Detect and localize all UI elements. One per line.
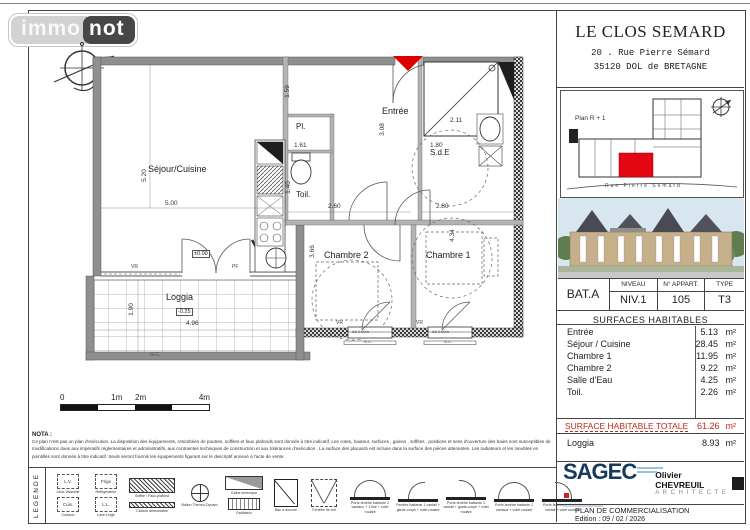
window-leaf-chambre2 (362, 302, 390, 330)
legend-item-window1: Fenêtre battante 1 vantail + garde-corps… (395, 479, 441, 512)
wall-chambre2-left (296, 225, 304, 360)
partition-sde-left (418, 57, 422, 220)
washer-icon: L.L. (95, 497, 117, 512)
wall-left (93, 57, 101, 276)
total-value: 61.26 (697, 421, 720, 431)
architect-title: A R C H I T E C T E (655, 490, 728, 496)
dim-loggia-w: 4.96 (186, 320, 199, 327)
dim-pl-h: 1.59 (284, 85, 291, 98)
doc-footer: PLAN DE COMMERCIALISATION Edition : 09 /… (557, 504, 744, 522)
sagec-tagline-bars (637, 467, 663, 473)
legend-item-door1gc: Porte-fenêtre battante 1 vantail + garde… (443, 477, 489, 514)
nota-text: Ce plan n'est pas un plan d'exécution. L… (32, 438, 552, 460)
room-label-chambre2: Chambre 2 (324, 250, 369, 260)
dim-c2-h: 3.66 (309, 245, 316, 258)
legend-item-frigo: Frigo Réfrigérateur (89, 474, 123, 494)
surface-row: Toil.2.26m² (557, 386, 744, 398)
dim-entree-h: 3.08 (379, 123, 386, 136)
mark-vr-sejour: VR (131, 264, 138, 270)
building-photo-art (558, 198, 744, 278)
legend-structures: Soffite / Faux-plafond Cloison démontabl… (129, 478, 175, 514)
level-value: NIV.1 (610, 292, 658, 310)
legend-band: LEGENDE L.V. Lave-Vaisselle Frigo Réfrig… (28, 467, 556, 523)
corner-duct (498, 62, 514, 100)
site-plan-box: Plan R + 1 Rue Pierre Sémard (560, 90, 744, 198)
surface-row: Séjour / Cuisine28.45m² (557, 338, 744, 350)
legend-item-soffite: Soffite / Faux-plafond (129, 478, 175, 498)
scale-bar-segments (60, 404, 210, 411)
architect-name: Olivier CHEVREUIL (655, 470, 728, 490)
partition-hall-bedrooms (283, 220, 523, 225)
col-type-header: TYPE (705, 278, 744, 291)
total-label: SURFACE HABITABLE TOTALE (565, 421, 688, 432)
legend-item-radiateur: Radiateur (224, 498, 264, 515)
surfaces-list: Entrée5.13m² Séjour / Cuisine28.45m² Cha… (557, 326, 744, 418)
shower-tray-icon (274, 479, 298, 507)
surface-row: Chambre 111.95m² (557, 350, 744, 362)
room-label-chambre1: Chambre 1 (426, 250, 471, 260)
scale-tick-3: 4m (199, 393, 210, 402)
chambre2-door-arc (364, 225, 400, 261)
surfaces-title: SURFACES HABITABLES (593, 315, 708, 325)
mark-pf-sejour: PF (232, 264, 238, 270)
mark-vr-c1: VR (416, 320, 423, 326)
site-plan-label: Plan R + 1 (575, 115, 606, 122)
single-door-guardrail-icon (446, 477, 486, 500)
kitchen-fridge-zone (257, 166, 283, 194)
mark-vr-c2: VR (336, 320, 343, 326)
doc-title: PLAN DE COMMERCIALISATION (575, 506, 744, 515)
wall-loggia-left (86, 276, 94, 360)
legend-title-cell: LEGENDE (28, 468, 46, 523)
legend-item-ll: L.L. Lave-Linge (89, 497, 123, 517)
dim-c1-w: 2.80 (436, 203, 449, 210)
surface-row: Entrée5.13m² (557, 326, 744, 338)
mark-sill-c1: Alt 0.60m (432, 329, 449, 334)
legend-item-ballon: Ballon Thermo-Dynam. (181, 484, 219, 507)
toilet-bowl (291, 160, 311, 184)
level-entry: ±0.00 (192, 250, 210, 258)
surfaces-title-bar: SURFACES HABITABLES (557, 310, 744, 325)
loggia-row: Loggia 8.93 m² (557, 434, 744, 462)
legend-item-door2: Porte-fenêtre battante 2 vantaux + volet… (491, 479, 537, 512)
legend-item-cloison: Cloison démontable (129, 502, 175, 513)
washbasin (480, 117, 500, 141)
architect-logo: Olivier CHEVREUIL A R C H I T E C T E (655, 470, 744, 496)
room-label-sde: S.d.E (430, 148, 450, 157)
roof-window-icon (311, 479, 337, 507)
dim-sejour-h: 5.20 (141, 169, 148, 182)
nota-block: NOTA : Ce plan n'est pas un plan d'exécu… (32, 432, 552, 460)
scale-tick-1: 1m (111, 393, 122, 402)
room-label-entree: Entrée (382, 106, 409, 116)
partition-chambre1-2 (411, 225, 416, 328)
partition-placard-bottom (288, 150, 332, 153)
wall-loggia-bottom (86, 352, 310, 360)
dim-toil-h: 1.40 (285, 181, 292, 194)
partition-placard-top (288, 114, 332, 117)
loggia-value: 8.93 (702, 438, 720, 448)
room-label-sejour: Séjour/Cuisine (148, 164, 207, 174)
dim-sejour-w: 5.00 (165, 200, 178, 207)
duct-icon (225, 476, 263, 490)
legend-title: LEGENDE (33, 473, 40, 518)
title-block: LE CLOS SEMARD 20 . Rue Pierre Sémard 35… (557, 10, 744, 88)
mark-gc-loggia: G.C. (150, 352, 160, 358)
surface-row: Salle d'Eau4.25m² (557, 374, 744, 386)
level-loggia: -0.25 (176, 308, 193, 316)
room-label-loggia: Loggia (166, 292, 193, 302)
total-unit: m² (726, 421, 737, 431)
site-plan-drawing (561, 91, 743, 197)
surfaces-list-divider (695, 326, 696, 418)
building-photo (558, 198, 744, 279)
dim-c1-h: 4.34 (449, 229, 456, 242)
legend-ducts: Gaine technique Radiateur (224, 476, 264, 516)
doc-edition: Edition : 09 / 02 / 2026 (575, 516, 744, 523)
logos-row: SAGEC Olivier CHEVREUIL A R C H I T E C … (557, 462, 744, 505)
radiator-icon (228, 498, 260, 510)
double-door2-icon (494, 479, 534, 502)
dim-pl-w: 1.61 (294, 142, 307, 149)
loggia-unit: m² (726, 438, 737, 448)
address-line1: 20 . Rue Pierre Sémard (557, 48, 744, 58)
legend-item-fdt: Fenêtre de toit (307, 479, 341, 512)
residence-name: LE CLOS SEMARD (557, 22, 744, 42)
kitchen-hob (257, 218, 283, 246)
fridge-icon: Frigo (95, 474, 117, 489)
surfaces-total-row: SURFACE HABITABLE TOTALE 61.26 m² (557, 418, 744, 434)
table-chambre1 (484, 238, 498, 276)
dim-sde-w: 2.11 (450, 117, 462, 124)
legend-appliances: L.V. Lave-Vaisselle Frigo Réfrigérateur … (51, 474, 123, 517)
loggia-label: Loggia (567, 438, 594, 448)
room-label-placard: Pl. (296, 122, 305, 131)
legend-item-cuis: Cuis. Cuisson (51, 497, 85, 517)
scale-tick-0: 0 (60, 393, 64, 402)
single-window-icon (398, 479, 438, 502)
surface-row: Chambre 29.22m² (557, 362, 744, 374)
dim-entree-w: 1.80 (430, 142, 443, 149)
room-label-toil: Toil. (296, 190, 310, 199)
dim-loggia-h: 1.90 (128, 303, 135, 316)
legend-item-door2f: Porte-fenêtre battante 2 vantaux + 1 fix… (347, 477, 393, 514)
col-level-header: NIVEAU (610, 278, 658, 291)
dishwasher-icon: L.V. (57, 474, 79, 489)
loggia-deck (94, 280, 302, 354)
access-circle-sde (412, 130, 488, 206)
legend-item-gaine: Gaine technique (224, 476, 264, 495)
chambre1-door-arc (395, 190, 430, 225)
mark-gc-c2: G.C. (364, 339, 372, 344)
wall-bottom-bedrooms (296, 328, 523, 337)
mark-gc-c1: G.C. (444, 339, 452, 344)
building-cell: BAT.A (557, 278, 610, 310)
legend-item-lv: L.V. Lave-Vaisselle (51, 474, 85, 494)
wall-top-left (93, 57, 395, 65)
highlighted-unit (619, 153, 653, 177)
sde-door-arc (349, 182, 387, 220)
scale-tick-2: 2m (135, 393, 146, 402)
dim-hall-w: 2.60 (328, 203, 341, 210)
address-line2: 35120 DOL de BRETAGNE (557, 62, 744, 72)
wall-right (514, 57, 523, 337)
scale-bar: 0 1m 2m 4m (60, 393, 210, 411)
type-value: T3 (705, 292, 744, 310)
col-apart-header: N° APPART. (658, 278, 706, 291)
water-heater-icon (191, 484, 209, 502)
double-door-icon (350, 477, 390, 500)
sagec-logo-dot (564, 493, 569, 498)
partition-icon (129, 502, 175, 508)
apart-value: 105 (658, 292, 706, 310)
site-plan-street: Rue Pierre Sémard (605, 183, 682, 189)
apartment-table: BAT.A NIVEAU N° APPART. TYPE NIV.1 105 T… (557, 278, 744, 311)
cooker-icon: Cuis. (57, 497, 79, 512)
architect-mark (732, 477, 744, 490)
sagec-logo: SAGEC (563, 459, 641, 507)
mark-sill-c2: Alt 0.60m (352, 329, 369, 334)
soffit-icon (129, 478, 175, 493)
window-leaf-chambre1 (442, 302, 470, 330)
legend-item-bac: Bac à douche (269, 479, 303, 512)
